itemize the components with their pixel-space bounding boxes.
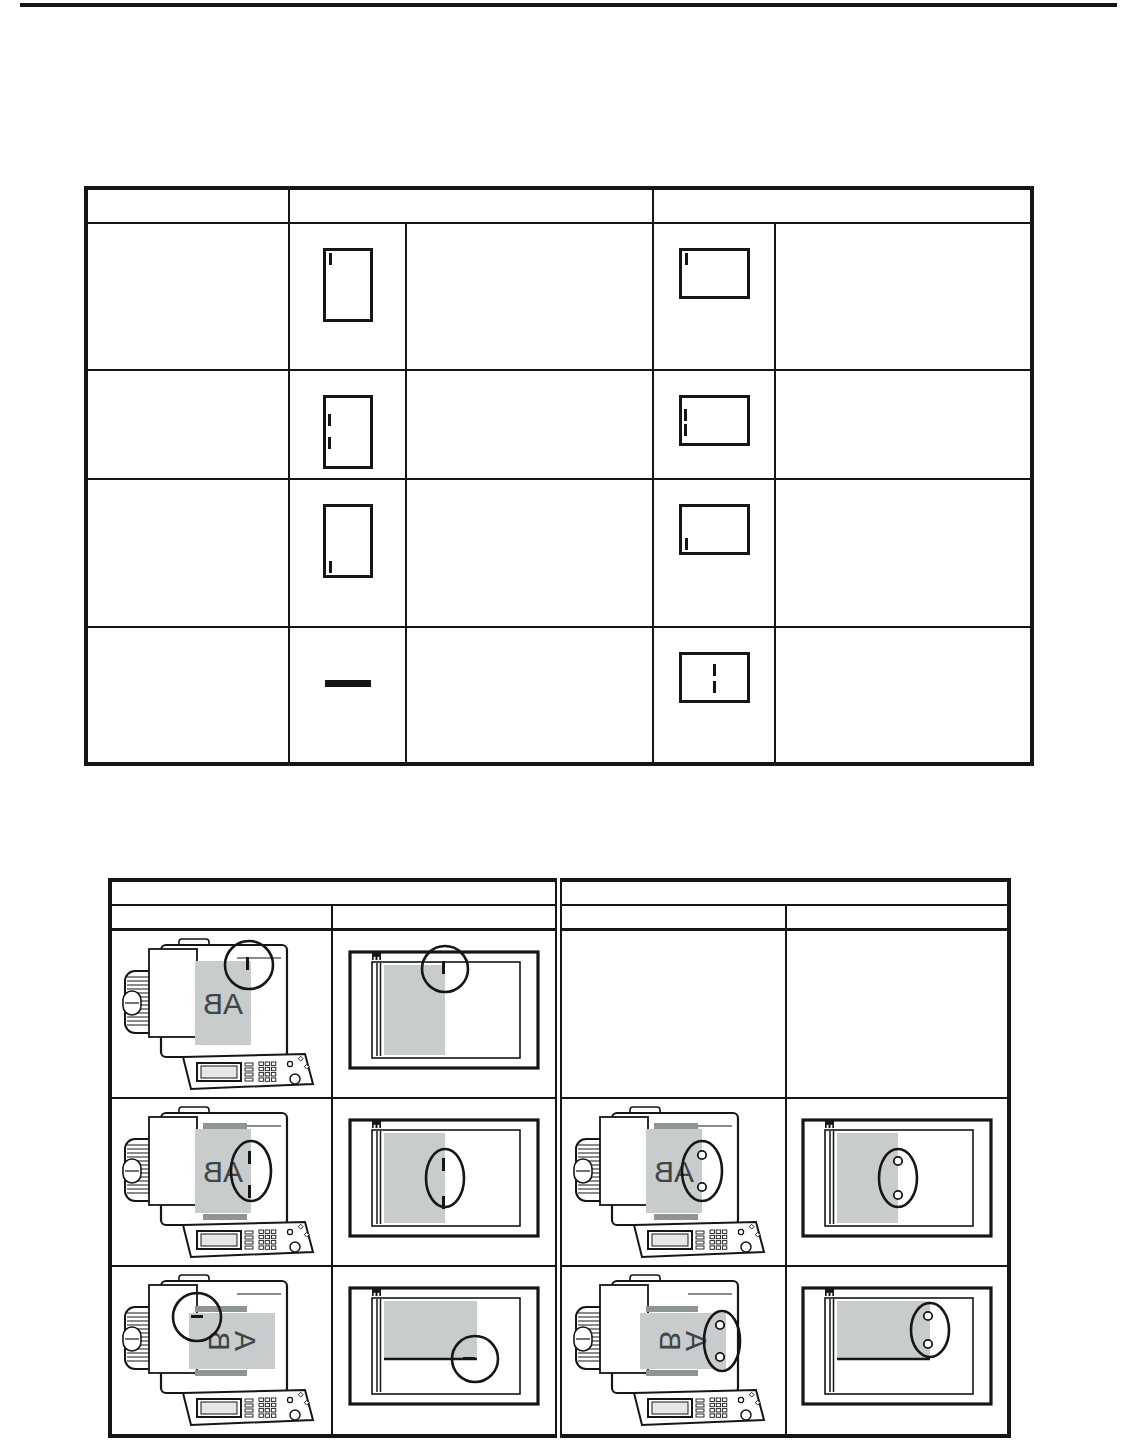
- staple-mark: [442, 961, 445, 974]
- landscape-diagram-cell: [653, 479, 775, 627]
- copier-illustration: AB: [119, 1101, 325, 1259]
- staple-mark: [191, 1315, 203, 1318]
- row-label-cell: [86, 370, 289, 479]
- staple-mark: [329, 253, 332, 265]
- punch-hole-mark: [716, 1353, 724, 1361]
- staple-icon: [372, 953, 381, 960]
- landscape-diagram-cell: [653, 627, 775, 764]
- header-cell: [86, 188, 289, 223]
- punch-hole-mark: [894, 1157, 902, 1165]
- staple-mark: [685, 538, 688, 550]
- staple-mark: [246, 957, 249, 970]
- document-guide-flap: [149, 1117, 197, 1205]
- copier-illustration: AB: [570, 1101, 776, 1259]
- paper-diagram-landscape: [679, 652, 750, 703]
- header-cell-landscape-group: [653, 188, 1032, 223]
- output-tray-illustration: [797, 1278, 997, 1418]
- paper-diagram-portrait: [323, 248, 373, 322]
- subheader-cell-result: [332, 905, 558, 929]
- paper-clamp: [203, 1214, 247, 1220]
- staple-position-table: [84, 186, 1034, 766]
- landscape-diagram-cell: [653, 223, 775, 371]
- start-button: [741, 1410, 751, 1420]
- start-button: [290, 1242, 300, 1252]
- copier-illustration: BA: [119, 1269, 325, 1427]
- control-panel: [183, 1222, 313, 1257]
- paper-clamp: [203, 1123, 247, 1129]
- description-cell: [775, 479, 1032, 627]
- punch-hole-mark: [698, 1151, 706, 1159]
- row-label-cell: [86, 479, 289, 627]
- staple-mark: [463, 1357, 475, 1360]
- stapled-output: [384, 965, 445, 1055]
- start-button: [290, 1074, 300, 1084]
- table-row: [86, 627, 1032, 764]
- header-cell-staple-group: [110, 880, 558, 905]
- staple-mark: [328, 437, 331, 449]
- stapled-output: [384, 1133, 445, 1223]
- punch-hole-mark: [924, 1340, 932, 1348]
- document-label: A: [680, 1331, 713, 1351]
- document-guide-flap: [149, 949, 197, 1037]
- paper-clamp: [195, 1370, 247, 1376]
- staple-icon: [372, 1289, 381, 1296]
- portrait-diagram-cell: [289, 223, 406, 371]
- copier-cell: AB: [110, 1098, 332, 1265]
- header-cell-portrait-group: [289, 188, 653, 223]
- output-cell: [786, 1266, 1009, 1436]
- table-subheader-row: [110, 905, 1009, 929]
- output-tray-illustration: [344, 1110, 544, 1250]
- copier-cell: AB: [558, 1098, 786, 1265]
- staple-mark: [684, 409, 687, 421]
- output-cell: [332, 1266, 558, 1436]
- output-cell: [332, 930, 558, 1098]
- start-button: [741, 1242, 751, 1252]
- paper-clamp: [654, 1214, 698, 1220]
- output-cell: [786, 1098, 1009, 1265]
- staple-icon: [372, 1121, 381, 1128]
- staple-mark: [442, 1158, 445, 1171]
- staple-mark: [328, 414, 331, 426]
- punch-hole-mark: [716, 1321, 724, 1329]
- output-tray-illustration: [797, 1110, 997, 1250]
- punch-hole-mark: [924, 1312, 932, 1320]
- table-row: AB AB: [110, 1098, 1009, 1265]
- paper-diagram-portrait: [323, 395, 373, 469]
- manual-page: AB AB AB: [0, 0, 1122, 1441]
- control-panel: [183, 1390, 313, 1425]
- portrait-diagram-cell: [289, 479, 406, 627]
- header-cell-punch-group: [558, 880, 1009, 905]
- description-cell: [406, 627, 653, 764]
- staple-mark: [248, 1151, 251, 1164]
- portrait-diagram-cell: [289, 627, 406, 764]
- description-cell: [775, 223, 1032, 371]
- portrait-diagram-cell: [289, 370, 406, 479]
- paper-clamp: [646, 1306, 698, 1312]
- copier-illustration: BA: [570, 1269, 776, 1427]
- table-row: [86, 223, 1032, 371]
- page-top-rule: [20, 3, 1117, 7]
- landscape-diagram-cell: [653, 370, 775, 479]
- row-label-cell: [86, 627, 289, 764]
- description-cell: [406, 223, 653, 371]
- copier-cell: BA: [110, 1266, 332, 1436]
- subheader-cell-orientation: [558, 905, 786, 929]
- document-label: AB: [654, 1154, 694, 1187]
- table-row: [86, 370, 1032, 479]
- stapled-output: [837, 1133, 898, 1223]
- paper-diagram-portrait: [323, 504, 373, 578]
- table-row: [86, 479, 1032, 627]
- paper-diagram-landscape: [679, 395, 750, 446]
- document-orientation-table: AB AB AB: [108, 878, 1011, 1438]
- empty-cell: [786, 930, 1009, 1098]
- paper-clamp: [654, 1123, 698, 1129]
- paper-diagram-landscape: [679, 248, 750, 299]
- paper-clamp: [646, 1370, 698, 1376]
- subheader-cell-result: [786, 905, 1009, 929]
- control-panel: [634, 1390, 764, 1425]
- staple-mark: [713, 664, 716, 676]
- copier-illustration: AB: [119, 933, 325, 1091]
- staple-mark: [685, 253, 688, 265]
- empty-cell: [558, 930, 786, 1098]
- control-panel: [183, 1054, 313, 1089]
- description-cell: [775, 627, 1032, 764]
- staple-mark: [442, 1196, 445, 1209]
- document-label: A: [228, 1331, 261, 1351]
- output-cell: [332, 1098, 558, 1265]
- punch-hole-mark: [698, 1183, 706, 1191]
- table-row: BA BA: [110, 1266, 1009, 1436]
- description-cell: [406, 479, 653, 627]
- row-label-cell: [86, 223, 289, 371]
- description-cell: [775, 370, 1032, 479]
- copier-cell: AB: [110, 930, 332, 1098]
- start-button: [290, 1410, 300, 1420]
- document-label: AB: [202, 1154, 242, 1187]
- table-header-row: [110, 880, 1009, 905]
- staple-mark: [248, 1185, 251, 1198]
- document-label: AB: [202, 987, 242, 1020]
- staple-mark: [684, 424, 687, 436]
- output-tray-illustration: [344, 942, 544, 1082]
- not-available-dash: [325, 680, 371, 687]
- paper-diagram-landscape: [679, 504, 750, 555]
- output-tray-illustration: [344, 1278, 544, 1418]
- description-cell: [406, 370, 653, 479]
- staple-mark: [329, 561, 332, 573]
- table-header-row: [86, 188, 1032, 223]
- staple-icon: [825, 1289, 834, 1296]
- document-guide-flap: [600, 1117, 648, 1205]
- copier-cell: BA: [558, 1266, 786, 1436]
- staple-mark: [713, 681, 716, 693]
- staple-icon: [825, 1121, 834, 1128]
- subheader-cell-orientation: [110, 905, 332, 929]
- stapled-output: [384, 1301, 477, 1359]
- table-row: AB: [110, 930, 1009, 1098]
- punch-hole-mark: [894, 1191, 902, 1199]
- control-panel: [634, 1222, 764, 1257]
